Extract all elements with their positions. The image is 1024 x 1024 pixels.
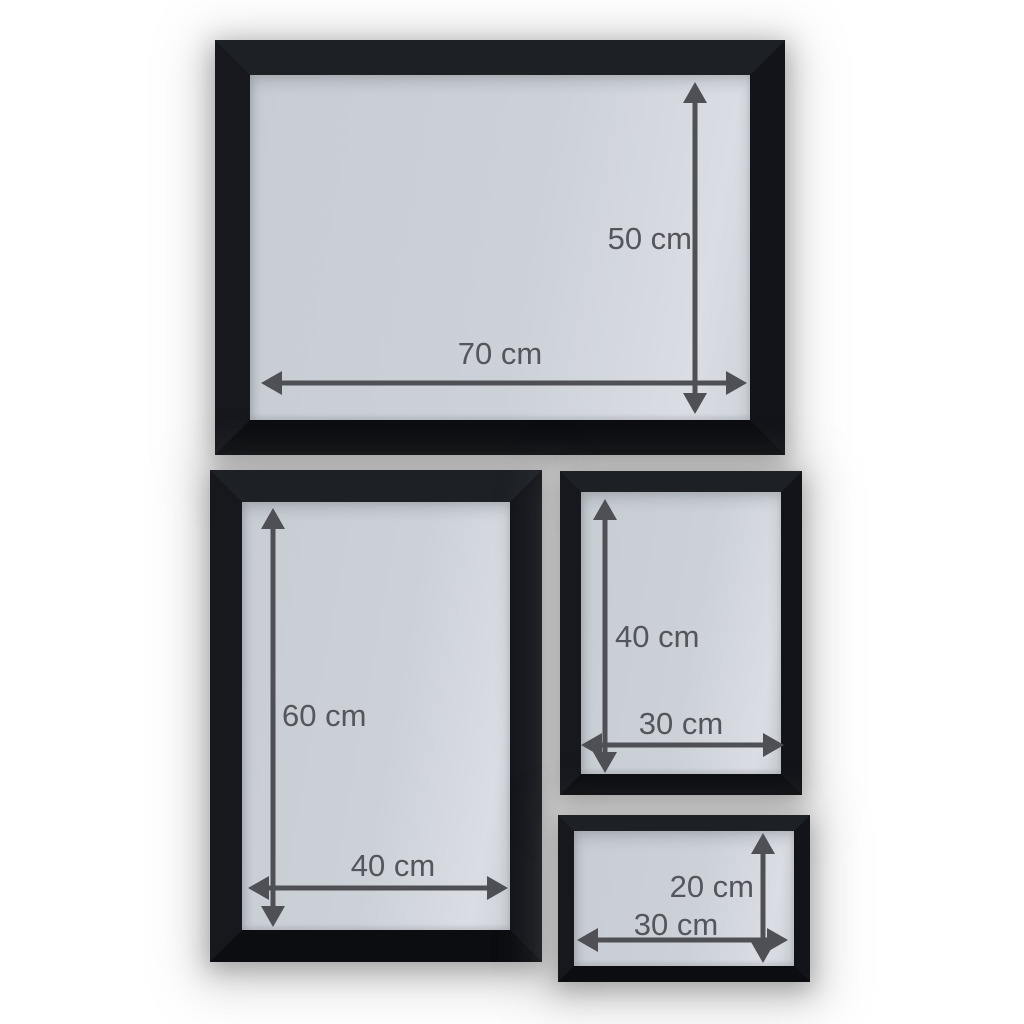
arrow-shaft	[587, 743, 778, 748]
height-dimension-label: 20 cm	[670, 871, 754, 902]
arrowhead-up-icon	[593, 499, 617, 520]
height-dimension-label: 50 cm	[608, 223, 692, 254]
frame-glass: 50 cm 70 cm	[250, 75, 750, 420]
width-dimension-label: 70 cm	[250, 338, 750, 369]
frame-glass: 40 cm 30 cm	[581, 492, 781, 774]
picture-frame-30x40: 40 cm 30 cm	[560, 471, 802, 795]
arrowhead-left-icon	[261, 371, 282, 395]
picture-frame-70x50: 50 cm 70 cm	[215, 40, 785, 455]
height-dimension-label: 40 cm	[615, 621, 699, 652]
arrowhead-down-icon	[261, 906, 285, 927]
frame-glass: 60 cm 40 cm	[242, 502, 510, 930]
arrowhead-up-icon	[683, 82, 707, 103]
picture-frame-30x20: 20 cm 30 cm	[558, 815, 810, 982]
arrowhead-up-icon	[751, 833, 775, 854]
arrowhead-down-icon	[683, 393, 707, 414]
arrowhead-right-icon	[726, 371, 747, 395]
arrow-shaft	[271, 514, 276, 921]
arrow-shaft	[267, 381, 741, 386]
frame-set-product-image: 50 cm 70 cm 60 cm 40 cm	[0, 0, 1024, 1024]
picture-frame-40x60: 60 cm 40 cm	[210, 470, 542, 962]
frame-glass: 20 cm 30 cm	[574, 831, 794, 966]
arrowhead-up-icon	[261, 508, 285, 529]
width-dimension-label: 40 cm	[276, 850, 510, 881]
width-dimension-arrow	[261, 371, 747, 395]
width-dimension-label: 30 cm	[574, 909, 778, 940]
width-dimension-label: 30 cm	[581, 708, 781, 739]
arrow-shaft	[254, 886, 502, 891]
arrowhead-left-icon	[248, 876, 269, 900]
height-dimension-label: 60 cm	[282, 700, 366, 731]
